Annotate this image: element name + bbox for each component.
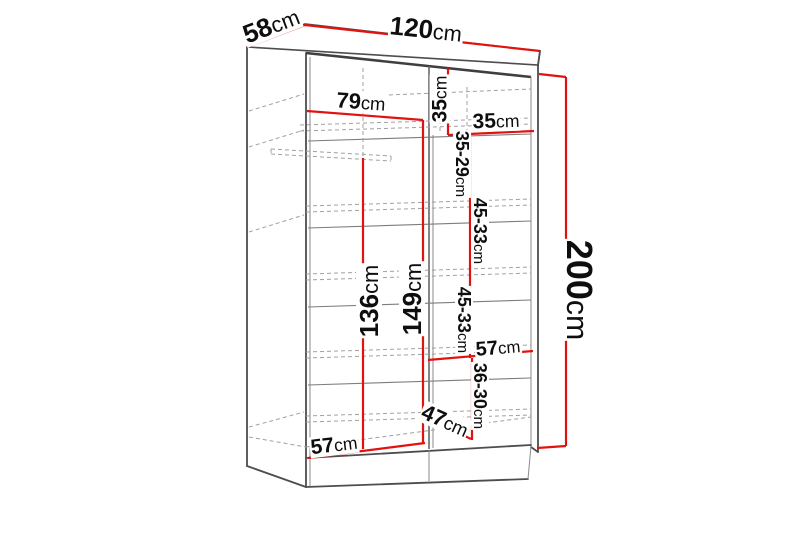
- dimension-label-bottom-right-shelf-width: 57cm: [474, 336, 522, 360]
- wardrobe-dimension-diagram: 58cm 120cm 79cm 35cm 35cm 35-29cm 45-33c…: [0, 0, 800, 533]
- shelf-line: [308, 378, 531, 385]
- dimension-label-right-gap-lower: 45-33cm: [455, 286, 473, 354]
- dimension-label-bottom-section-height: 36-30cm: [471, 362, 489, 430]
- wardrobe-outline: [247, 24, 540, 487]
- hanging-rail: [271, 149, 391, 161]
- dimension-label-right-section-width: 35cm: [471, 110, 521, 133]
- shelf-line: [308, 134, 531, 141]
- dimension-label-hanging-space-height: 136cm: [356, 264, 382, 339]
- dimension-label-right-gap-upper: 45-33cm: [471, 197, 489, 265]
- dimension-label-top-section-height: 35cm: [430, 75, 451, 124]
- dimension-label-overall-height: 200cm: [561, 239, 597, 341]
- dimension-label-left-section-width: 79cm: [335, 89, 388, 115]
- dimension-label-middle-column-height: 149cm: [399, 262, 425, 337]
- shelf-line: [308, 221, 531, 228]
- dimension-label-right-gap-top: 35-29cm: [453, 130, 471, 198]
- interior-divider: [429, 66, 440, 449]
